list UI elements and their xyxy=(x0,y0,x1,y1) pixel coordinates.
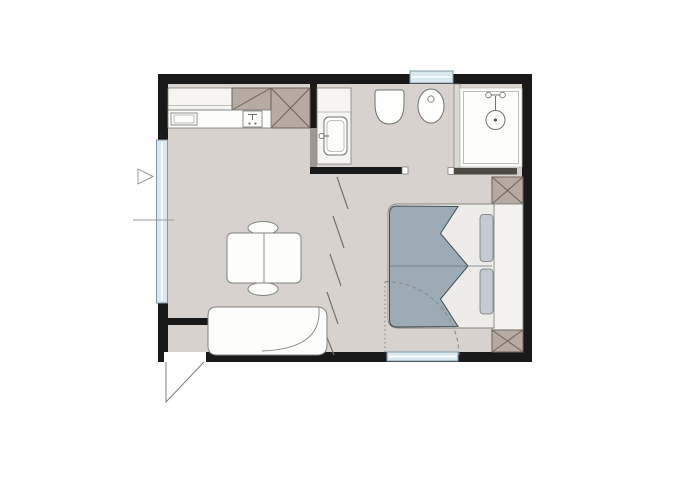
wall-end-cap-shower xyxy=(448,168,454,175)
floor-plan-drawing xyxy=(0,0,700,500)
kitchen-upper-cabinet xyxy=(168,88,232,110)
shower-head-center xyxy=(494,118,497,121)
toilet xyxy=(375,90,404,124)
shower-screen-bar xyxy=(454,168,517,175)
bed-pillow-bottom xyxy=(480,269,493,314)
sofa xyxy=(208,307,327,355)
wall-top xyxy=(158,74,532,84)
wall-bathroom-vertical-lower xyxy=(310,128,317,167)
headboard-wardrobe xyxy=(492,204,523,330)
floor-plan-page xyxy=(0,0,700,500)
wall-bathroom-vertical xyxy=(310,84,317,128)
wall-bathroom-horizontal xyxy=(310,167,403,174)
bed-pillow-top xyxy=(480,215,493,262)
wall-end-cap-bathroom xyxy=(402,167,408,174)
washbasin-tap-icon xyxy=(319,133,324,138)
kitchen-tap-knob-left xyxy=(248,122,250,124)
wall-vestibule-stub xyxy=(159,318,208,325)
entrance-opening xyxy=(164,352,206,362)
wall-right xyxy=(522,74,532,362)
kitchen-tap-knob-right xyxy=(254,122,256,124)
shower-screen-end xyxy=(517,168,522,175)
shower-valve-knob-right xyxy=(500,92,506,98)
direction-triangle-icon xyxy=(138,169,153,184)
entrance-door-leaf xyxy=(166,362,204,402)
bidet xyxy=(418,89,444,123)
shower-partition-wall xyxy=(454,84,460,168)
shower-valve-knob-left xyxy=(486,92,492,98)
bidet-drain-icon xyxy=(428,96,434,102)
chair-bottom xyxy=(248,283,278,296)
